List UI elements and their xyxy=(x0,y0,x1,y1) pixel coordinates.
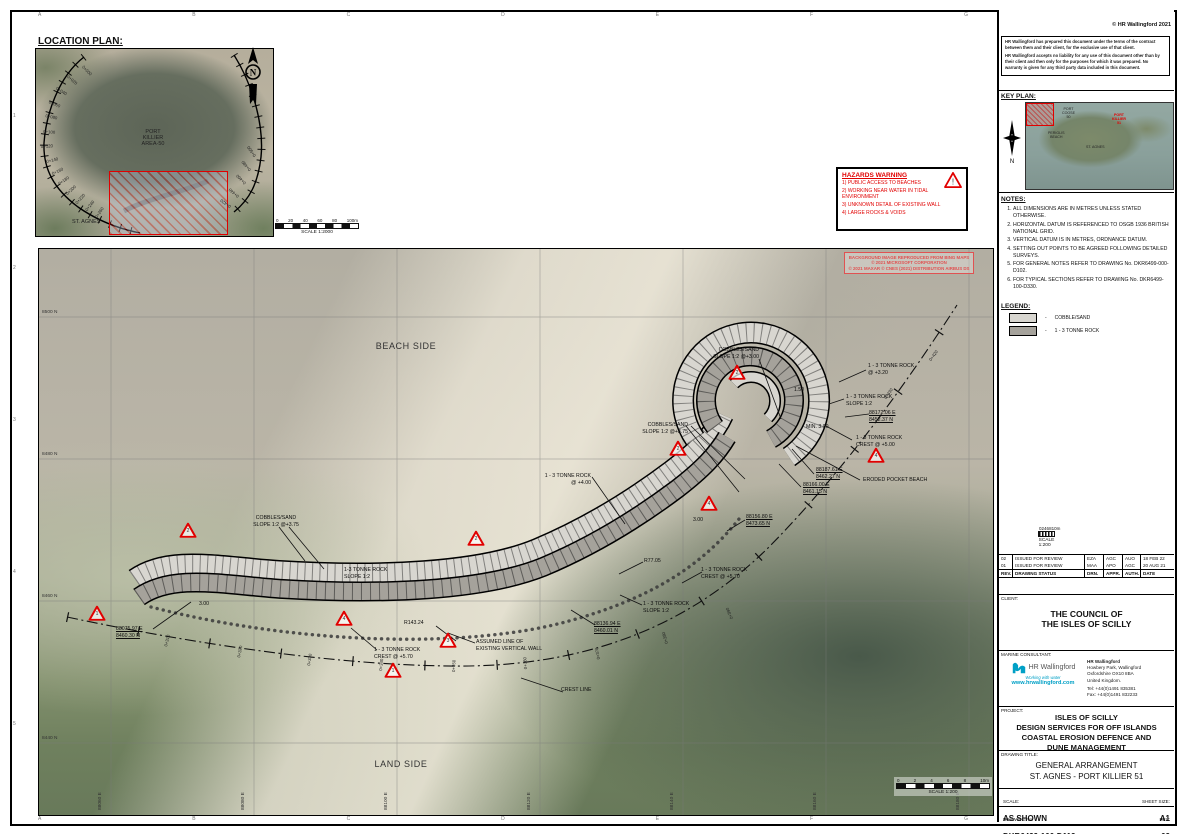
drawing-number-label: DRAWING No: xyxy=(1003,817,1033,822)
legend-heading: LEGEND: xyxy=(1001,303,1174,310)
location-plan-heading: LOCATION PLAN: xyxy=(38,36,123,47)
warning-triangle-icon: 2 xyxy=(180,523,197,538)
plan-annotation-label: 88172.06 E 8452.37 N xyxy=(869,410,896,423)
frame-letter: G xyxy=(964,12,968,18)
scheme-extent-box xyxy=(109,171,228,235)
plan-annotation-label: MIN. 3.00 xyxy=(806,424,829,431)
grid-easting-label: 88160 E xyxy=(813,792,818,810)
warning-triangle-icon: 1 xyxy=(385,663,402,678)
frame-number: 4 xyxy=(13,569,16,575)
frame-letter: F xyxy=(810,12,813,18)
frame-letter: E xyxy=(656,12,659,18)
drawing-number-row: DRAWING No: DKR6499-100-D112 REV: 02 xyxy=(999,806,1174,824)
scale-row: SCALE: AS SHOWN SHEET SIZE: A1 xyxy=(999,788,1174,806)
legend-label: COBBLE/SAND xyxy=(1055,315,1091,321)
hazard-ref-number: 3 xyxy=(440,638,457,644)
scalebar-bar xyxy=(275,223,359,229)
warning-triangle-icon: 1 xyxy=(89,606,106,621)
key-plan-label: PORT COOSE 50 xyxy=(1062,107,1075,119)
hazard-item: 2) WORKING NEAR WATER IN TIDAL ENVIRONME… xyxy=(842,189,962,201)
frame-number: 1 xyxy=(13,113,16,119)
panel-scalebar: 0246810m SCALE 1:200 xyxy=(999,522,1094,554)
note-item: FOR GENERAL NOTES REFER TO DRAWING No. D… xyxy=(1013,261,1174,275)
plan-annotation-label: 88166.00 E 8461.15 N xyxy=(803,482,830,495)
north-arrow-icon: N xyxy=(1003,120,1021,164)
frame-letter: A xyxy=(38,12,41,18)
plan-annotation-label: 88187.61 E 8462.27 N xyxy=(816,467,843,480)
warning-triangle-icon: 3 xyxy=(440,633,457,648)
grid-northing-label: 8460 N xyxy=(42,594,57,599)
location-plan-inset: PORT KILLIER AREA-50 ST. AGNES 0+0000+02… xyxy=(35,48,274,237)
scalebar-caption: SCALE 1:200 xyxy=(1039,538,1055,548)
revision-table: 02ISSUED FOR REVIEW EZAAGC AUO18 FEB 22 … xyxy=(999,554,1174,594)
scalebar-bar xyxy=(1038,531,1055,537)
plan-annotation-label: COBBLES/SAND SLOPE 1:2 @+3.75 xyxy=(642,422,688,435)
key-plan-label: ST. AGNES xyxy=(1086,145,1105,149)
frame-letter: E xyxy=(656,816,659,822)
grid-northing-label: 8500 N xyxy=(42,310,57,315)
chainage-label: 0+100 xyxy=(43,129,55,135)
frame-number: 3 xyxy=(13,417,16,423)
disclaimer-box: HR Wallingford has prepared this documen… xyxy=(1001,36,1170,76)
plan-annotation-label: 3.00 xyxy=(693,517,703,524)
key-plan-label: PORT KILLIER 51 xyxy=(1112,113,1126,125)
warning-triangle-icon: 2 xyxy=(729,365,746,380)
revision-rows: 02ISSUED FOR REVIEW EZAAGC AUO18 FEB 22 … xyxy=(999,555,1174,569)
location-plan-scalebar: 020406080100m SCALE 1:2000 xyxy=(276,218,358,235)
chainage-label: 0+360 xyxy=(522,657,528,669)
plan-annotation-label: BEACH SIDE xyxy=(376,341,437,352)
disclaimer-text: HR Wallingford has prepared this documen… xyxy=(1005,39,1166,50)
scalebar-caption: SCALE 1:2000 xyxy=(301,230,333,235)
frame-letter: F xyxy=(810,816,813,822)
frame-letter: D xyxy=(501,816,505,822)
legend-label: 1 - 3 TONNE ROCK xyxy=(1055,328,1100,334)
hazard-ref-number: 2 xyxy=(180,528,197,534)
plan-annotation-label: 1 - 3 TONNE ROCK SLOPE 1:2 xyxy=(643,601,689,614)
plan-annotation-label: 1-3 TONNE ROCK SLOPE 1:2 xyxy=(344,567,387,580)
scalebar-caption: SCALE 1:200 xyxy=(928,790,957,795)
plan-annotation-label: CREST LINE xyxy=(561,687,591,694)
plan-annotation-label: COBBLES/SAND SLOPE 1:2 @+3.75 xyxy=(253,515,299,528)
plan-annotation-label: 3.00 xyxy=(199,601,209,608)
drawing-title-section: DRAWING TITLE: GENERAL ARRANGEMENT ST. A… xyxy=(999,750,1174,788)
client-label: CLIENT: xyxy=(1001,596,1174,601)
consultant-address: Howbery Park, Wallingford Oxfordshire OX… xyxy=(1087,665,1167,684)
plan-annotation-label: R77.05 xyxy=(644,558,661,565)
chainage-label: 0+120 xyxy=(41,143,53,149)
client-section: CLIENT: THE COUNCIL OF THE ISLES OF SCIL… xyxy=(999,594,1174,650)
revision-row: 01ISSUED FOR REVIEW MAAAPO AGC20 AUG 21 xyxy=(999,562,1174,569)
key-plan-heading: KEY PLAN: xyxy=(1001,93,1174,100)
attribution-line: © 2021 MAXAR © CNES (2021) DISTRIBUTION … xyxy=(847,266,971,272)
legend-swatch xyxy=(1009,313,1037,323)
plan-annotation-label: 88136.94 E 8460.01 N xyxy=(594,621,621,634)
consultant-section: MARINE CONSULTANT: HR Wallingford Workin… xyxy=(999,650,1174,706)
note-item: FOR TYPICAL SECTIONS REFER TO DRAWING No… xyxy=(1013,277,1174,291)
grid-easting-label: 88140 E xyxy=(670,792,675,810)
plan-annotation-label: 1 - 3 TONNE ROCK @ +4.00 xyxy=(545,473,591,486)
consultant-fax: Fax: +44(0)1491 832233 xyxy=(1087,692,1167,698)
warning-triangle-icon: 2 xyxy=(670,441,687,456)
notes-heading: NOTES: xyxy=(1001,196,1174,203)
grid-northing-label: 8480 N xyxy=(42,452,57,457)
notes-section: NOTES: ALL DIMENSIONS ARE IN METRES UNLE… xyxy=(999,192,1174,300)
legend-dash: - xyxy=(1045,328,1047,334)
consultant-logo-text: HR Wallingford xyxy=(1029,664,1076,671)
consultant-label: MARINE CONSULTANT: xyxy=(1001,652,1174,657)
plan-annotation-label: 88075.97 E 8460.30 N xyxy=(116,626,143,639)
hazards-warning-box: HAZARDS WARNING ! 1) PUBLIC ACCESS TO BE… xyxy=(836,167,968,231)
revision-header-row: REV.DRAWING STATUS DRN.APPR. AUTH.DATE xyxy=(999,569,1174,578)
legend-section: LEGEND: - COBBLE/SAND - 1 - 3 TONNE ROCK xyxy=(999,300,1174,522)
note-item: ALL DIMENSIONS ARE IN METRES UNLESS STAT… xyxy=(1013,206,1174,220)
plan-annotation-label: 1.50 xyxy=(794,387,804,394)
consultant-url[interactable]: www.hrwallingford.com xyxy=(999,680,1087,686)
frame-letter: A xyxy=(38,816,41,822)
warning-triangle-icon: 4 xyxy=(336,611,353,626)
revision-row: 02ISSUED FOR REVIEW EZAAGC AUO18 FEB 22 xyxy=(999,555,1174,562)
hazard-ref-number: 1 xyxy=(385,668,402,674)
plan-scalebar: 0246810m SCALE 1:200 xyxy=(894,777,992,796)
frame-letter: C xyxy=(347,816,351,822)
warning-triangle-icon: 4 xyxy=(868,448,885,463)
legend-item: - 1 - 3 TONNE ROCK xyxy=(1009,326,1174,336)
key-plan-section: KEY PLAN: N PORT COOSE 50 PORT KILLIER 5… xyxy=(999,90,1174,192)
hazard-ref-number: 2 xyxy=(670,446,687,452)
plan-annotation-label: ERODED POCKET BEACH xyxy=(863,477,927,484)
legend-swatch xyxy=(1009,326,1037,336)
frame-letters-bottom: ABCDEFG xyxy=(38,816,968,822)
scale-label: SCALE: xyxy=(1003,799,1019,804)
hazard-item: 4) LARGE ROCKS & VOIDS xyxy=(842,211,962,217)
plan-annotation-label: 1 - 3 TONNE ROCK CREST @ +5.70 xyxy=(701,567,747,580)
hr-wallingford-logo-icon xyxy=(1011,659,1027,675)
grid-easting-label: 88080 E xyxy=(241,792,246,810)
key-plan-scheme-box xyxy=(1026,103,1054,126)
location-plan-place-label: ST. AGNES xyxy=(72,219,100,225)
legend-item: - COBBLE/SAND xyxy=(1009,313,1174,323)
frame-number: 5 xyxy=(13,721,16,727)
svg-text:N: N xyxy=(250,68,257,78)
plan-annotation-label: ASSUMED LINE OF EXISTING VERTICAL WALL xyxy=(476,639,542,652)
frame-letter: G xyxy=(964,816,968,822)
plan-annotation-label: LAND SIDE xyxy=(375,759,428,770)
rev-label: REV: xyxy=(1159,817,1170,822)
hazard-ref-number: 4 xyxy=(701,501,718,507)
svg-text:N: N xyxy=(1010,159,1014,164)
hazard-ref-number: 2 xyxy=(468,536,485,542)
warning-triangle-icon: ! xyxy=(944,172,962,188)
legend-list: - COBBLE/SAND - 1 - 3 TONNE ROCK xyxy=(999,313,1174,336)
grid-easting-label: 88060 E xyxy=(98,792,103,810)
plan-annotation-label: R143.24 xyxy=(404,620,424,627)
svg-text:!: ! xyxy=(952,177,954,186)
chainage-label: 0+350 xyxy=(451,660,456,672)
plan-annotation-label: 1 - 3 TONNE ROCK CREST @ +5.00 xyxy=(856,435,902,448)
frame-numbers-left: 12345 xyxy=(13,40,16,800)
location-plan-area-label: PORT KILLIER AREA-50 xyxy=(142,129,165,147)
note-item: HORIZONTAL DATUM IS REFERENCED TO OSGB 1… xyxy=(1013,222,1174,236)
plan-annotation-label: 1 - 3 TONNE ROCK @ +3.20 xyxy=(868,363,914,376)
project-section: PROJECT: ISLES OF SCILLY DESIGN SERVICES… xyxy=(999,706,1174,750)
note-item: SETTING OUT POINTS TO BE AGREED FOLLOWIN… xyxy=(1013,246,1174,260)
hazard-ref-number: 1 xyxy=(89,611,106,617)
disclaimer-text: HR Wallingford accepts no liability for … xyxy=(1005,53,1166,70)
warning-triangle-icon: 4 xyxy=(701,496,718,511)
hazard-ref-number: 2 xyxy=(729,370,746,376)
hazard-item: 3) UNKNOWN DETAIL OF EXISTING WALL xyxy=(842,203,962,209)
client-name: THE COUNCIL OF THE ISLES OF SCILLY xyxy=(999,609,1174,629)
grid-easting-label: 88120 E xyxy=(527,792,532,810)
sheet-size-label: SHEET SIZE: xyxy=(1142,799,1170,804)
north-arrow-icon: N xyxy=(243,46,263,108)
title-block-panel: © HR Wallingford 2021 HR Wallingford has… xyxy=(997,10,1174,822)
frame-number: 2 xyxy=(13,265,16,271)
hazard-ref-number: 4 xyxy=(336,616,353,622)
background-attribution: BACKGROUND IMAGE REPRODUCED FROM BING MA… xyxy=(844,252,974,274)
grid-northing-label: 8440 N xyxy=(42,736,57,741)
plan-annotation-label: COBBLES/SAND SLOPE 1:2 @+3.00 xyxy=(713,347,759,360)
legend-dash: - xyxy=(1045,315,1047,321)
main-plan: BACKGROUND IMAGE REPRODUCED FROM BING MA… xyxy=(38,248,994,816)
project-title: ISLES OF SCILLY DESIGN SERVICES FOR OFF … xyxy=(999,713,1174,752)
frame-letter: D xyxy=(501,12,505,18)
key-plan-label: PERIGLIS BEACH xyxy=(1048,131,1065,139)
plan-annotation-label: 88156.80 E 8473.65 N xyxy=(746,514,773,527)
frame-letter: C xyxy=(347,12,351,18)
frame-letter: B xyxy=(192,12,195,18)
drawing-title: GENERAL ARRANGEMENT ST. AGNES - PORT KIL… xyxy=(999,761,1174,783)
drawing-title-label: DRAWING TITLE: xyxy=(1001,752,1174,757)
key-plan-map: PORT COOSE 50 PORT KILLIER 51 PERIGLIS B… xyxy=(1025,102,1174,190)
note-item: VERTICAL DATUM IS IN METRES, ORDNANCE DA… xyxy=(1013,237,1174,244)
drawing-sheet-page: ABCDEFG ABCDEFG 12345 LOCATION PLAN: POR… xyxy=(0,0,1185,834)
hazard-ref-number: 4 xyxy=(868,453,885,459)
frame-letter: B xyxy=(192,816,195,822)
notes-list: ALL DIMENSIONS ARE IN METRES UNLESS STAT… xyxy=(1001,206,1174,291)
scalebar-bar xyxy=(896,783,990,789)
frame-letters-top: ABCDEFG xyxy=(38,12,968,18)
warning-triangle-icon: 2 xyxy=(468,531,485,546)
copyright: © HR Wallingford 2021 xyxy=(1112,22,1171,28)
grid-easting-label: 88100 E xyxy=(384,792,389,810)
